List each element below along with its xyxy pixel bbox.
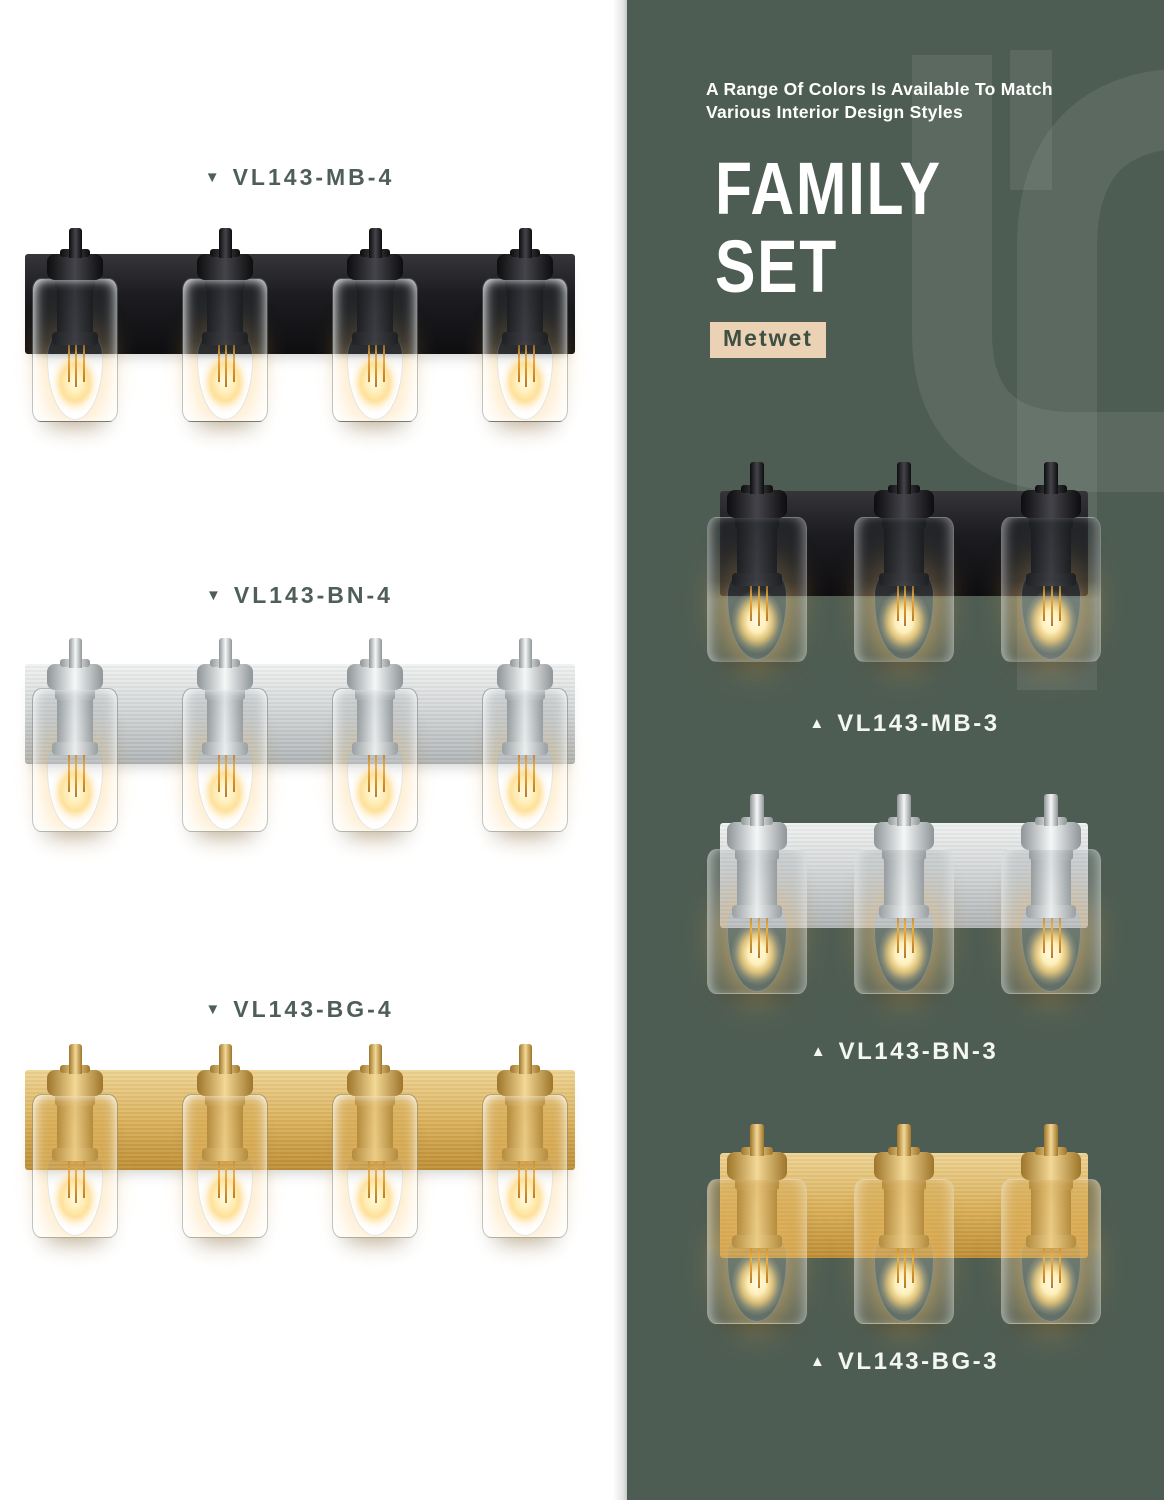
glass-shade <box>182 278 268 422</box>
variant-caption-bn3: ▲VL143-BN-3 <box>627 1038 1164 1066</box>
title-line-2: SET <box>715 228 942 306</box>
glass-shade <box>482 278 568 422</box>
variant-label: VL143-MB-3 <box>837 710 999 737</box>
fixture-vl143-bg-3 <box>684 1124 1124 1324</box>
glass-shade <box>854 517 954 662</box>
variant-caption-bn4: ▼VL143-BN-4 <box>0 582 627 609</box>
product-collage: ▼VL143-MB-4 ▼VL143-BN-4 ▼VL143-BG-4 A Ra… <box>0 0 1164 1500</box>
fixture-vl143-bn-4 <box>0 638 600 834</box>
socket-cap <box>1021 490 1081 518</box>
glass-shade <box>1001 1179 1101 1324</box>
tagline-line-2: Various Interior Design Styles <box>706 101 1053 124</box>
stem <box>219 1044 232 1074</box>
stem <box>750 794 764 826</box>
glass-shade <box>482 1094 568 1238</box>
stem <box>519 1044 532 1074</box>
glass-shade <box>32 1094 118 1238</box>
glass-shade <box>32 688 118 832</box>
stem <box>219 228 232 258</box>
socket-cap <box>874 822 934 850</box>
title-line-1: FAMILY <box>715 150 942 228</box>
fixture-vl143-bn-3 <box>684 794 1124 994</box>
brand-badge: Metwet <box>710 322 826 358</box>
stem <box>69 638 82 668</box>
stem <box>69 1044 82 1074</box>
stem <box>369 228 382 258</box>
glass-shade <box>332 1094 418 1238</box>
glass-shade <box>707 849 807 994</box>
stem <box>750 1124 764 1156</box>
fixture-vl143-bg-4 <box>0 1044 600 1240</box>
stem <box>1044 1124 1058 1156</box>
variant-label: VL143-BG-3 <box>838 1348 999 1375</box>
socket-cap <box>727 490 787 518</box>
stem <box>369 1044 382 1074</box>
variant-label: VL143-BN-4 <box>234 582 393 608</box>
glass-shade <box>707 517 807 662</box>
stem <box>69 228 82 258</box>
variant-label: VL143-BG-4 <box>233 996 393 1022</box>
down-triangle-icon: ▼ <box>206 587 221 604</box>
tagline-line-1: A Range Of Colors Is Available To Match <box>706 78 1053 101</box>
panel-edge-shadow <box>613 0 627 1500</box>
socket-cap <box>727 822 787 850</box>
variant-label: VL143-BN-3 <box>839 1038 999 1065</box>
socket-cap <box>874 490 934 518</box>
stem <box>219 638 232 668</box>
glass-shade <box>182 1094 268 1238</box>
stem <box>897 462 911 494</box>
socket-cap <box>1021 822 1081 850</box>
variant-caption-mb3: ▲VL143-MB-3 <box>627 710 1164 738</box>
stem <box>897 794 911 826</box>
glass-shade <box>32 278 118 422</box>
stem <box>897 1124 911 1156</box>
stem <box>519 228 532 258</box>
up-triangle-icon: ▲ <box>810 1353 825 1370</box>
down-triangle-icon: ▼ <box>205 169 220 186</box>
variant-caption-mb4: ▼VL143-MB-4 <box>0 164 627 191</box>
glass-shade <box>182 688 268 832</box>
glass-shade <box>707 1179 807 1324</box>
glass-shade <box>1001 517 1101 662</box>
socket-cap <box>874 1152 934 1180</box>
glass-shade <box>854 849 954 994</box>
up-triangle-icon: ▲ <box>809 715 824 732</box>
up-triangle-icon: ▲ <box>811 1043 826 1060</box>
fixture-vl143-mb-4 <box>0 228 600 424</box>
socket-cap <box>727 1152 787 1180</box>
green-panel: A Range Of Colors Is Available To Match … <box>627 0 1164 1500</box>
glass-shade <box>854 1179 954 1324</box>
variant-caption-bg4: ▼VL143-BG-4 <box>0 996 627 1023</box>
fixture-vl143-mb-3 <box>684 462 1124 662</box>
panel-tagline: A Range Of Colors Is Available To Match … <box>706 78 1053 124</box>
stem <box>369 638 382 668</box>
stem <box>750 462 764 494</box>
variant-label: VL143-MB-4 <box>233 164 395 190</box>
stem <box>1044 462 1058 494</box>
variant-caption-bg3: ▲VL143-BG-3 <box>627 1348 1164 1376</box>
glass-shade <box>332 688 418 832</box>
socket-cap <box>1021 1152 1081 1180</box>
glass-shade <box>482 688 568 832</box>
down-triangle-icon: ▼ <box>205 1001 220 1018</box>
glass-shade <box>332 278 418 422</box>
stem <box>1044 794 1058 826</box>
family-set-title: FAMILY SET <box>715 150 942 305</box>
stem <box>519 638 532 668</box>
glass-shade <box>1001 849 1101 994</box>
